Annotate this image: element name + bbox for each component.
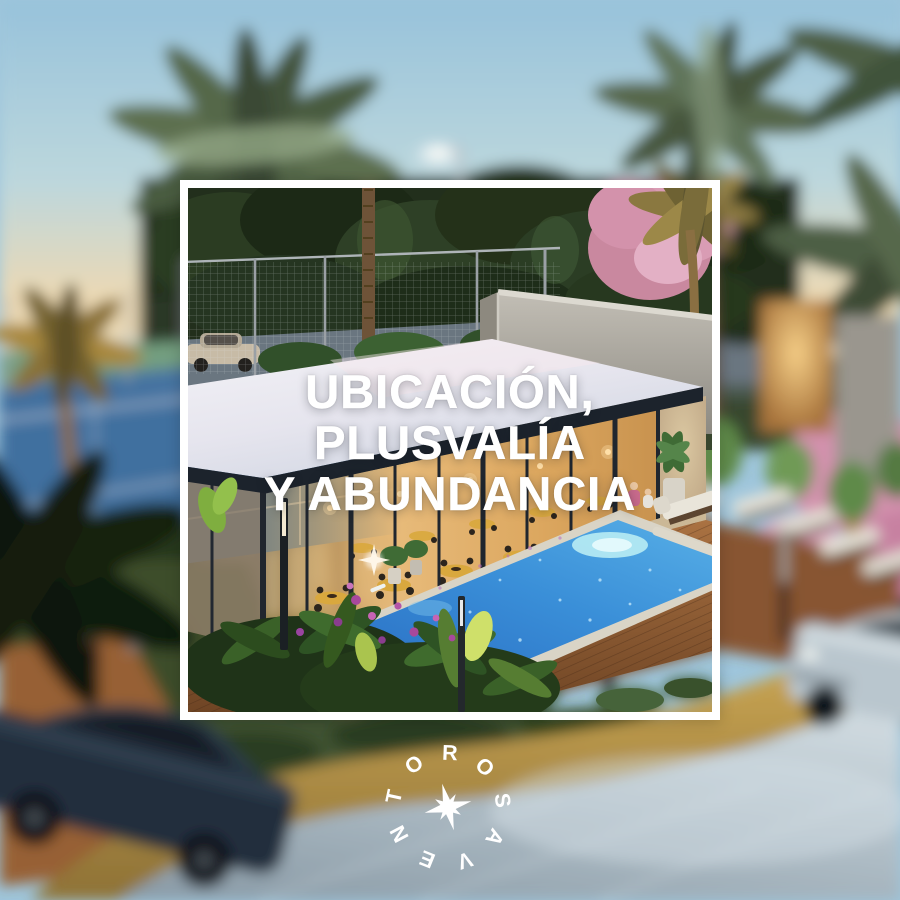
headline-line-2: PLUSVALÍA [0,417,900,468]
brand-logo: ROSAVENTO [358,717,538,897]
logo-letter: A [480,824,509,850]
logo-letter: V [454,847,476,874]
logo-letter: S [490,792,516,810]
headline-line-3: Y ABUNDANCIA [0,468,900,519]
logo-letter: O [471,753,499,782]
logo-letter: E [416,845,438,873]
headline: UBICACIÓN, PLUSVALÍA Y ABUNDANCIA [0,366,900,519]
logo-letter: T [381,788,407,806]
logo-letter: N [385,821,413,846]
logo-letter: R [442,741,459,766]
compass-star-icon [419,778,477,836]
logo-letter: O [400,750,428,779]
headline-line-1: UBICACIÓN, [0,366,900,417]
social-post-image: UBICACIÓN, PLUSVALÍA Y ABUNDANCIA ROSAVE… [0,0,900,900]
